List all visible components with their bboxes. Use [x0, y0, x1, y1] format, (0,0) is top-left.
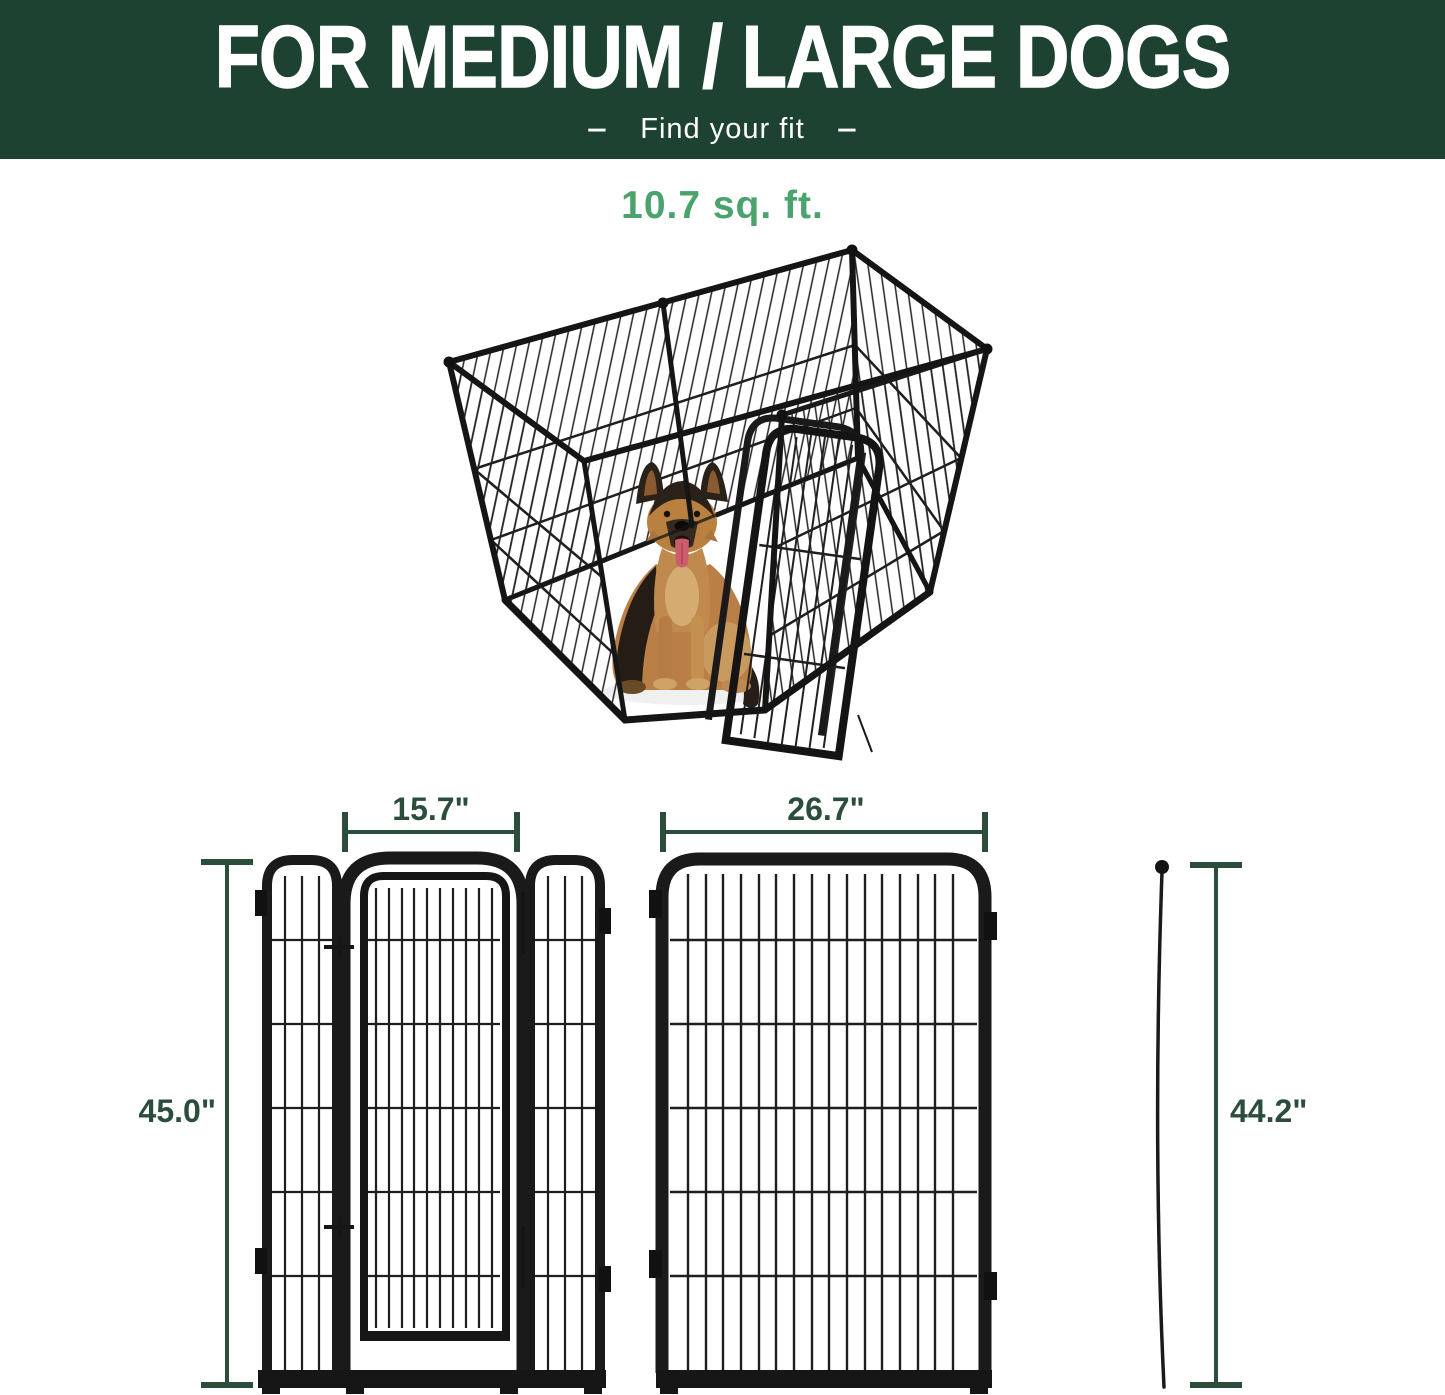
header-title: FOR MEDIUM / LARGE DOGS [215, 13, 1231, 101]
large-panel-height-label: 44.2" [1230, 1093, 1307, 1129]
dimension-diagram: 15.7" 45.0" [0, 780, 1445, 1395]
connector-tab [984, 1272, 997, 1300]
side-panel-right [530, 860, 611, 1373]
header-banner: FOR MEDIUM / LARGE DOGS – Find your fit … [0, 0, 1445, 159]
connector-tab [599, 908, 611, 934]
gate-panel-diagram: 15.7" 45.0" [139, 791, 611, 1394]
product-infographic: FOR MEDIUM / LARGE DOGS – Find your fit … [0, 0, 1445, 1395]
playpen-photo [410, 240, 1030, 780]
subtitle-dash-right-icon: – [837, 113, 858, 146]
connector-tab [255, 1248, 267, 1274]
area-label: 10.7 sq. ft. [0, 184, 1445, 228]
connector-tab [649, 890, 662, 918]
gate-panel-bottom-rail [258, 1370, 606, 1394]
header-subtitle: – Find your fit – [589, 113, 856, 146]
rod-finial [1155, 860, 1169, 874]
large-panel-diagram: 26.7" [649, 791, 1307, 1394]
gate-panel-height-label: 45.0" [139, 1093, 216, 1129]
gate-door-frame [364, 876, 506, 1332]
subtitle-dash-left-icon: – [587, 113, 608, 146]
large-panel [649, 859, 997, 1394]
side-panel-left [255, 860, 337, 1373]
large-panel-width-label: 26.7" [787, 791, 864, 827]
connector-tab [599, 1266, 611, 1292]
dog-front-leg [659, 616, 672, 682]
header-subtitle-text: Find your fit [640, 113, 805, 146]
dog-front-leg [691, 616, 704, 682]
connector-tab [255, 890, 267, 916]
gate-panel [324, 858, 529, 1373]
gate-panel-width-label: 15.7" [392, 791, 469, 827]
connector-rod [1155, 860, 1169, 1387]
connector-tab [649, 1250, 662, 1278]
connector-tab [984, 912, 997, 940]
